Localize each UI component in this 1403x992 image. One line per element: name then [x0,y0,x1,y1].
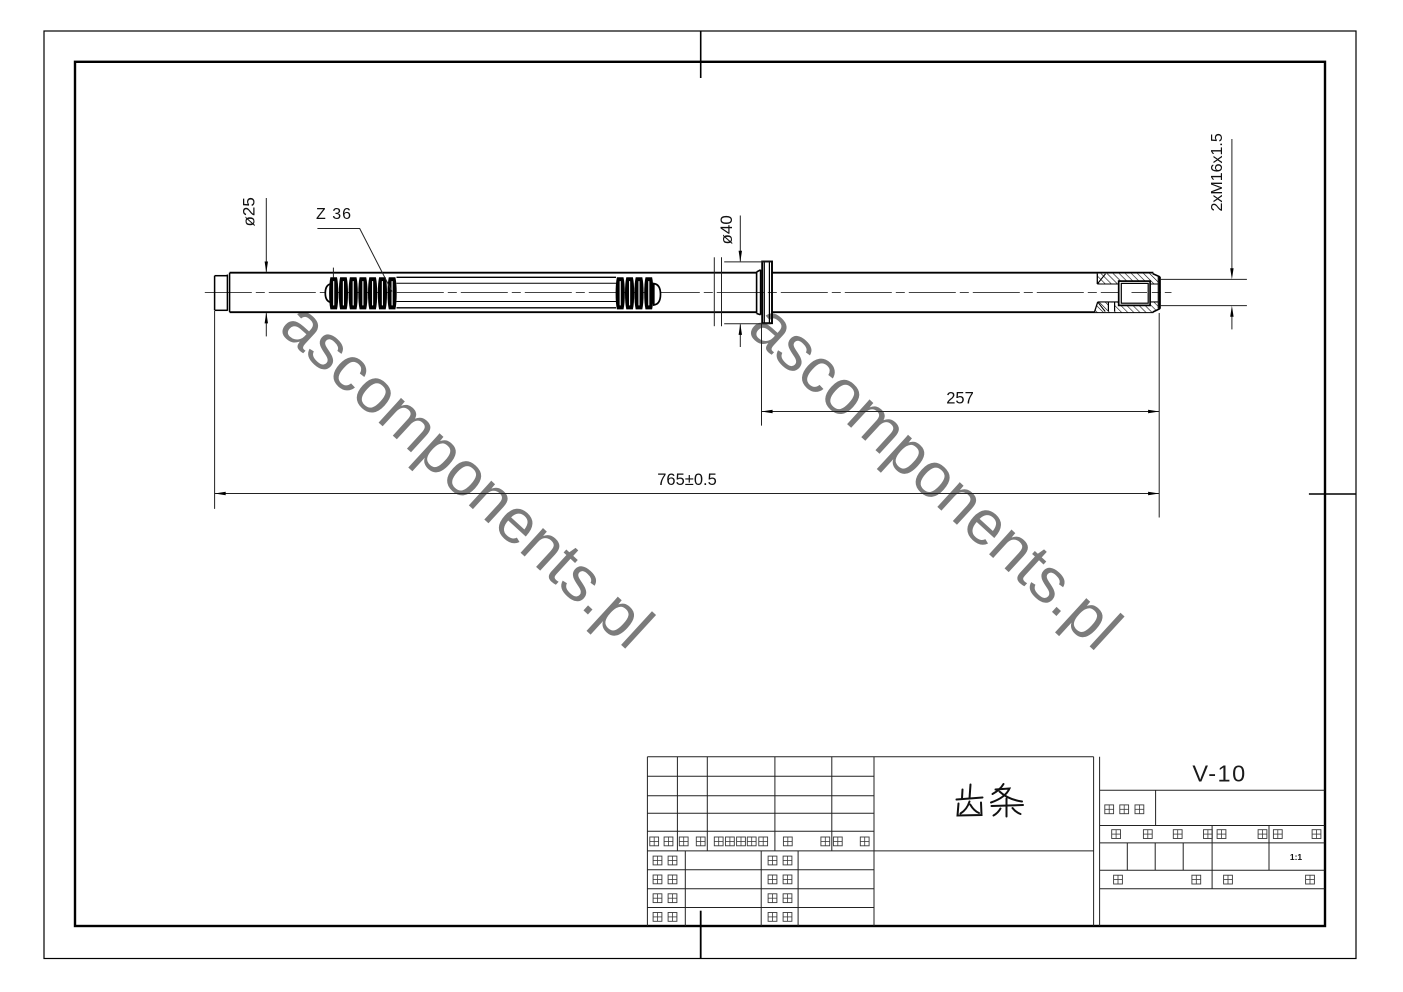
svg-text:257: 257 [946,390,974,408]
svg-text:V-10: V-10 [1192,761,1246,787]
svg-text:ø40: ø40 [717,215,736,244]
svg-text:ø25: ø25 [240,197,259,226]
svg-text:2xM16x1.5: 2xM16x1.5 [1209,133,1226,211]
svg-text:765±0.5: 765±0.5 [657,471,717,489]
svg-text:Z 36: Z 36 [316,206,352,223]
svg-text:1:1: 1:1 [1290,852,1303,862]
